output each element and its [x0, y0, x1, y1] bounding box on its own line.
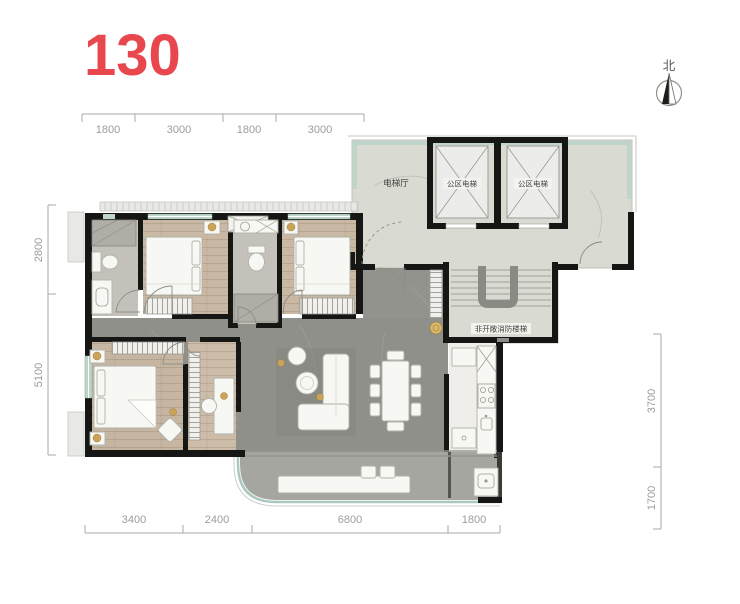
bedroom1-wardrobe [146, 298, 192, 314]
plan-title: 130 [84, 23, 181, 88]
dim-left-0: 2800 [33, 238, 45, 262]
vanity-sink [92, 280, 112, 314]
dim-top-2: 1800 [237, 124, 261, 136]
balcony-bench [278, 476, 410, 493]
elevator-left-label: 公区电梯 [447, 179, 477, 189]
dim-right-1: 1700 [646, 486, 658, 510]
dim-top-3: 3000 [308, 124, 332, 136]
coffee-table [296, 372, 318, 394]
floor-plan-page: 电梯厅 公区电梯 公区电梯 非开敞消防楼梯 1800 3000 1800 300… [0, 0, 740, 604]
floor-plan: 电梯厅 公区电梯 公区电梯 非开敞消防楼梯 1800 3000 1800 300… [0, 0, 740, 604]
foyer-furniture [430, 270, 442, 334]
north-compass-icon: 北 [657, 59, 682, 106]
dim-bottom-0: 3400 [122, 514, 146, 526]
kitchen-counter [477, 346, 496, 454]
dim-bottom-1: 2400 [205, 514, 229, 526]
decor-bowl [430, 322, 442, 334]
desk-chair [202, 399, 217, 414]
stool [361, 466, 376, 478]
dim-left-1: 5100 [33, 363, 45, 387]
dim-bottom-2: 6800 [338, 514, 362, 526]
dim-top-1: 3000 [167, 124, 191, 136]
dining-table [382, 361, 409, 421]
elevator-hall-label: 电梯厅 [383, 178, 409, 188]
toilet [248, 246, 265, 253]
elevator-right-label: 公区电梯 [518, 179, 548, 189]
fire-stairs-label: 非开敞消防楼梯 [475, 324, 528, 334]
living-room-furniture [276, 347, 356, 436]
north-label: 北 [663, 59, 676, 73]
dishwasher [452, 428, 476, 448]
dim-bottom-3: 1800 [462, 514, 486, 526]
toilet [92, 252, 101, 272]
bedroom2-wardrobe [300, 298, 354, 314]
lamp-dot [287, 223, 295, 231]
lounge-chair [288, 347, 306, 365]
study-closet [189, 352, 200, 440]
desk [214, 378, 234, 434]
stool [380, 466, 395, 478]
dim-right-0: 3700 [646, 389, 658, 413]
master-wardrobe [112, 342, 184, 354]
dim-top-0: 1800 [96, 124, 120, 136]
lamp-dot [208, 223, 216, 231]
foyer-cabinet [430, 270, 442, 318]
